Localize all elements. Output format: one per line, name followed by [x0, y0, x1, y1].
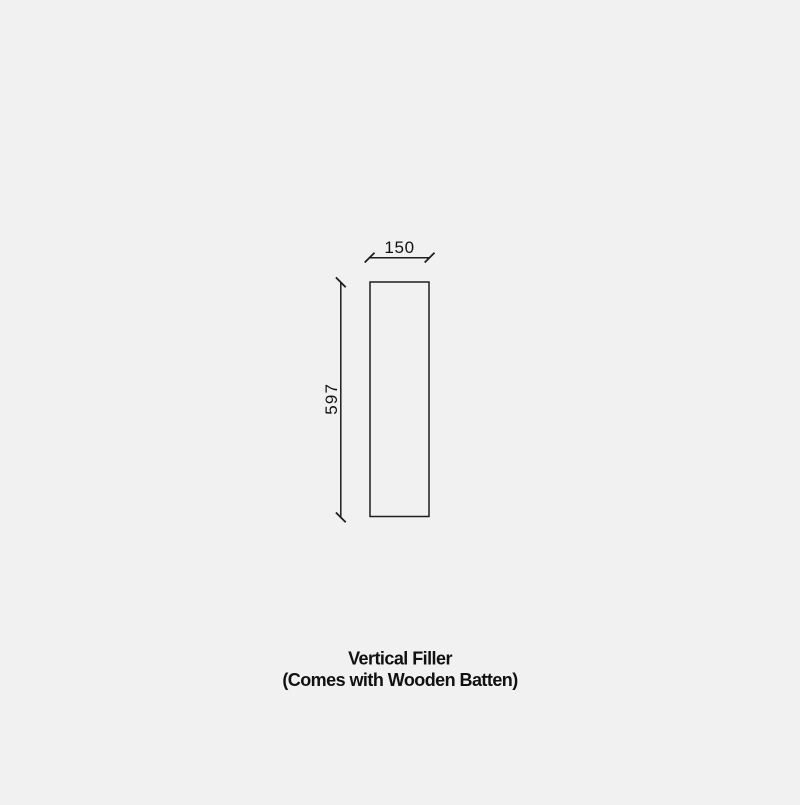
svg-text:150: 150	[384, 238, 414, 257]
svg-text:(Comes with Wooden Batten): (Comes with Wooden Batten)	[282, 670, 518, 690]
svg-text:Vertical Filler: Vertical Filler	[348, 649, 452, 669]
svg-text:597: 597	[322, 383, 341, 415]
